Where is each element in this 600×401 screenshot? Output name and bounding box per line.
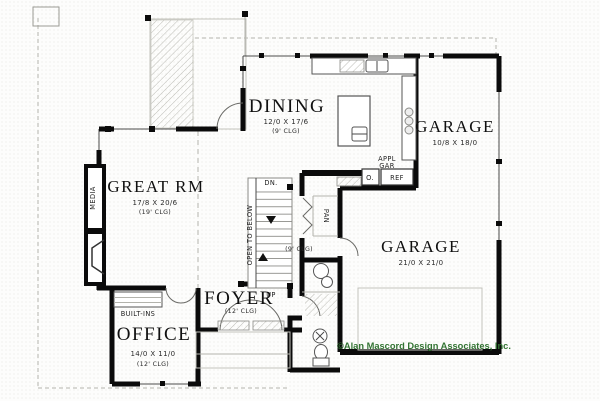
patio-hatch: [151, 20, 193, 128]
cooktop-icon: [405, 108, 413, 116]
fireplace-icon: [86, 232, 104, 284]
ref-label: REF: [390, 174, 404, 182]
pantry-bifold-door: [303, 198, 312, 234]
foyer-clg: (12' CLG): [225, 308, 257, 315]
garage-main-dims: 21/0 X 21/0: [398, 259, 443, 267]
floor-plan: GREAT RM 17/8 X 20/6 (19' CLG) DINING 12…: [0, 0, 600, 401]
office-label: OFFICE: [117, 324, 191, 345]
dining-clg: (9' CLG): [272, 128, 300, 135]
dining-label: DINING: [249, 96, 326, 117]
great-room-clg: (19' CLG): [139, 209, 171, 216]
cooktop-icon: [405, 126, 413, 134]
utility-sink-icon: [322, 277, 333, 288]
office-door-swing: [166, 288, 181, 303]
toilet-tank: [313, 358, 329, 366]
built-ins-cabinet: [114, 292, 162, 307]
great-room-label: GREAT RM: [107, 177, 204, 196]
dining-dims: 12/0 X 17/6: [263, 118, 308, 126]
garage-main-label: GARAGE: [381, 237, 461, 256]
built-ins-label: BUILT-INS: [121, 310, 156, 318]
labels: GREAT RM 17/8 X 20/6 (19' CLG) DINING 12…: [89, 96, 511, 368]
great-room-dims: 17/8 X 20/6: [132, 199, 177, 207]
appl-gar-label-2: GAR: [379, 162, 394, 170]
patio: [145, 11, 248, 129]
plan-corner-mark: [33, 7, 59, 26]
dining-door-swing: [217, 103, 243, 129]
stairs: [248, 178, 293, 289]
oven-label: O.: [366, 174, 374, 182]
foyer-label: FOYER: [204, 288, 274, 309]
stair-clg-label: (9' CLG): [285, 246, 313, 253]
cooktop-icon: [405, 117, 413, 125]
office-clg: (12' CLG): [137, 361, 169, 368]
up-label: UP: [266, 291, 276, 299]
entry-door-sill: [218, 321, 249, 330]
office-dims: 14/0 X 11/0: [130, 350, 175, 358]
toilet-icon: [315, 345, 328, 360]
coat-closet-hatch: [305, 294, 337, 316]
entry-door-sill: [253, 321, 284, 330]
dishwasher-icon: [340, 60, 364, 72]
garage-upper-label: GARAGE: [415, 117, 495, 136]
floor-plan-drawing: GREAT RM 17/8 X 20/6 (19' CLG) DINING 12…: [0, 0, 600, 401]
porch: [196, 332, 290, 368]
garage-entry-door-swing: [340, 238, 358, 256]
pan-label: PAN: [322, 209, 330, 223]
office-door-swing: [181, 288, 196, 303]
copyright-text: ©Alan Mascord Design Associates, Inc.: [337, 341, 511, 351]
garage-upper-dims: 10/8 X 18/0: [432, 139, 477, 147]
counter-hatch: [337, 177, 361, 186]
media-label: MEDIA: [89, 186, 97, 209]
open-to-below-label: OPEN TO BELOW: [246, 205, 254, 266]
dn-label: DN.: [264, 179, 277, 187]
